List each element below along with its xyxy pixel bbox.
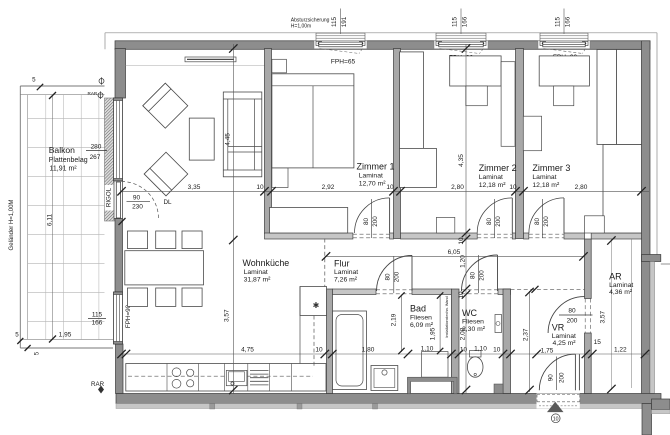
svg-text:10: 10 <box>509 184 517 191</box>
svg-text:1,10: 1,10 <box>421 346 434 353</box>
svg-text:Plattenbelag: Plattenbelag <box>49 157 88 164</box>
svg-text:2,37: 2,37 <box>523 328 530 341</box>
svg-text:Flur: Flur <box>334 259 350 269</box>
svg-text:191: 191 <box>341 16 348 27</box>
svg-text:10: 10 <box>493 347 501 354</box>
svg-text:RIGOL: RIGOL <box>106 187 113 207</box>
svg-text:6,11: 6,11 <box>47 214 54 227</box>
svg-text:Fliesen: Fliesen <box>410 315 432 322</box>
svg-text:80: 80 <box>534 218 541 226</box>
svg-text:166: 166 <box>92 320 103 327</box>
svg-text:4,35: 4,35 <box>458 154 465 167</box>
svg-text:Installationstechn. Wand: Installationstechn. Wand <box>445 296 449 337</box>
svg-text:FPH=90: FPH=90 <box>125 304 132 328</box>
svg-text:Laminat: Laminat <box>244 269 268 276</box>
svg-text:DL: DL <box>164 199 173 206</box>
svg-text:280: 280 <box>91 144 102 151</box>
svg-text:RAR: RAR <box>88 91 98 96</box>
svg-text:90: 90 <box>133 195 141 202</box>
svg-text:230: 230 <box>132 204 143 211</box>
svg-text:Zimmer 1: Zimmer 1 <box>357 162 395 172</box>
svg-text:200: 200 <box>567 318 578 325</box>
svg-text:200: 200 <box>543 216 550 227</box>
svg-text:3,57: 3,57 <box>600 310 607 323</box>
svg-text:80: 80 <box>486 218 493 226</box>
svg-text:2,19: 2,19 <box>391 313 398 326</box>
svg-text:Laminat: Laminat <box>334 269 358 276</box>
svg-text:✱: ✱ <box>313 301 320 310</box>
svg-text:10: 10 <box>553 417 559 423</box>
svg-text:200: 200 <box>479 270 486 281</box>
svg-text:1,80: 1,80 <box>362 347 375 354</box>
svg-text:Zimmer 3: Zimmer 3 <box>532 163 570 173</box>
svg-text:4,75: 4,75 <box>241 347 254 354</box>
svg-text:115: 115 <box>452 16 459 27</box>
svg-text:2,92: 2,92 <box>322 184 335 191</box>
svg-text:Laminat: Laminat <box>359 173 383 180</box>
svg-text:10: 10 <box>315 347 323 354</box>
svg-text:1,22: 1,22 <box>614 347 627 354</box>
svg-text:Wohnküche: Wohnküche <box>243 258 290 268</box>
svg-text:WC: WC <box>462 308 477 318</box>
svg-text:166: 166 <box>462 16 469 27</box>
svg-text:Absturzsicherung: Absturzsicherung <box>291 17 330 23</box>
svg-text:Laminat: Laminat <box>609 282 633 289</box>
svg-text:267: 267 <box>90 154 101 161</box>
svg-text:AR: AR <box>609 272 622 282</box>
svg-text:80: 80 <box>385 273 392 281</box>
svg-text:7,26 m²: 7,26 m² <box>334 277 358 284</box>
svg-text:4,25 m²: 4,25 m² <box>553 340 577 347</box>
svg-text:FPH=65: FPH=65 <box>331 58 356 65</box>
svg-text:Laminat: Laminat <box>532 174 556 181</box>
svg-text:200: 200 <box>394 271 401 282</box>
svg-text:10: 10 <box>256 184 264 191</box>
svg-text:Geländer H=1,00M: Geländer H=1,00M <box>9 200 15 251</box>
svg-text:1,75: 1,75 <box>541 348 554 355</box>
svg-text:6,05: 6,05 <box>448 249 461 256</box>
svg-text:3,57: 3,57 <box>223 309 230 322</box>
svg-text:2,08: 2,08 <box>460 327 467 340</box>
svg-text:1,10: 1,10 <box>474 346 487 353</box>
svg-text:3,35: 3,35 <box>188 184 201 191</box>
svg-text:Zimmer 2: Zimmer 2 <box>479 163 517 173</box>
svg-text:80: 80 <box>568 308 576 315</box>
svg-text:80: 80 <box>363 218 370 226</box>
svg-text:90: 90 <box>548 374 555 382</box>
svg-text:2,80: 2,80 <box>451 184 464 191</box>
svg-text:166: 166 <box>565 16 572 27</box>
svg-text:Fliesen: Fliesen <box>462 319 484 326</box>
svg-text:RAR: RAR <box>91 381 105 388</box>
svg-text:115: 115 <box>555 16 562 27</box>
svg-text:31,87 m²: 31,87 m² <box>244 277 272 284</box>
svg-text:Laminat: Laminat <box>479 174 503 181</box>
svg-text:11,91 m²: 11,91 m² <box>50 166 78 173</box>
svg-text:Bad: Bad <box>410 304 426 314</box>
svg-text:4,36 m²: 4,36 m² <box>609 289 633 296</box>
svg-text:1,95: 1,95 <box>429 327 436 340</box>
svg-text:10: 10 <box>460 347 468 354</box>
svg-text:Laminat: Laminat <box>552 333 576 340</box>
svg-text:1,20: 1,20 <box>460 255 467 268</box>
svg-text:10: 10 <box>458 237 465 245</box>
svg-text:115: 115 <box>92 312 103 319</box>
svg-text:80: 80 <box>470 272 477 280</box>
svg-text:5: 5 <box>15 332 19 339</box>
svg-text:1,95: 1,95 <box>59 332 72 339</box>
svg-text:4,45: 4,45 <box>224 133 231 146</box>
svg-text:5: 5 <box>32 77 36 84</box>
svg-text:115: 115 <box>331 16 338 27</box>
svg-text:2,80: 2,80 <box>575 184 588 191</box>
svg-text:H=1,00m: H=1,00m <box>291 24 311 30</box>
svg-text:10: 10 <box>386 184 394 191</box>
svg-text:200: 200 <box>372 216 379 227</box>
svg-text:12,18 m²: 12,18 m² <box>479 182 507 189</box>
svg-text:200: 200 <box>495 216 502 227</box>
svg-text:15: 15 <box>594 339 602 346</box>
svg-text:200: 200 <box>559 372 566 383</box>
svg-text:VR: VR <box>552 323 565 333</box>
svg-text:12,70 m²: 12,70 m² <box>359 181 387 188</box>
svg-text:10: 10 <box>458 291 465 299</box>
svg-text:5: 5 <box>34 351 41 355</box>
svg-text:12,18 m²: 12,18 m² <box>532 182 560 189</box>
